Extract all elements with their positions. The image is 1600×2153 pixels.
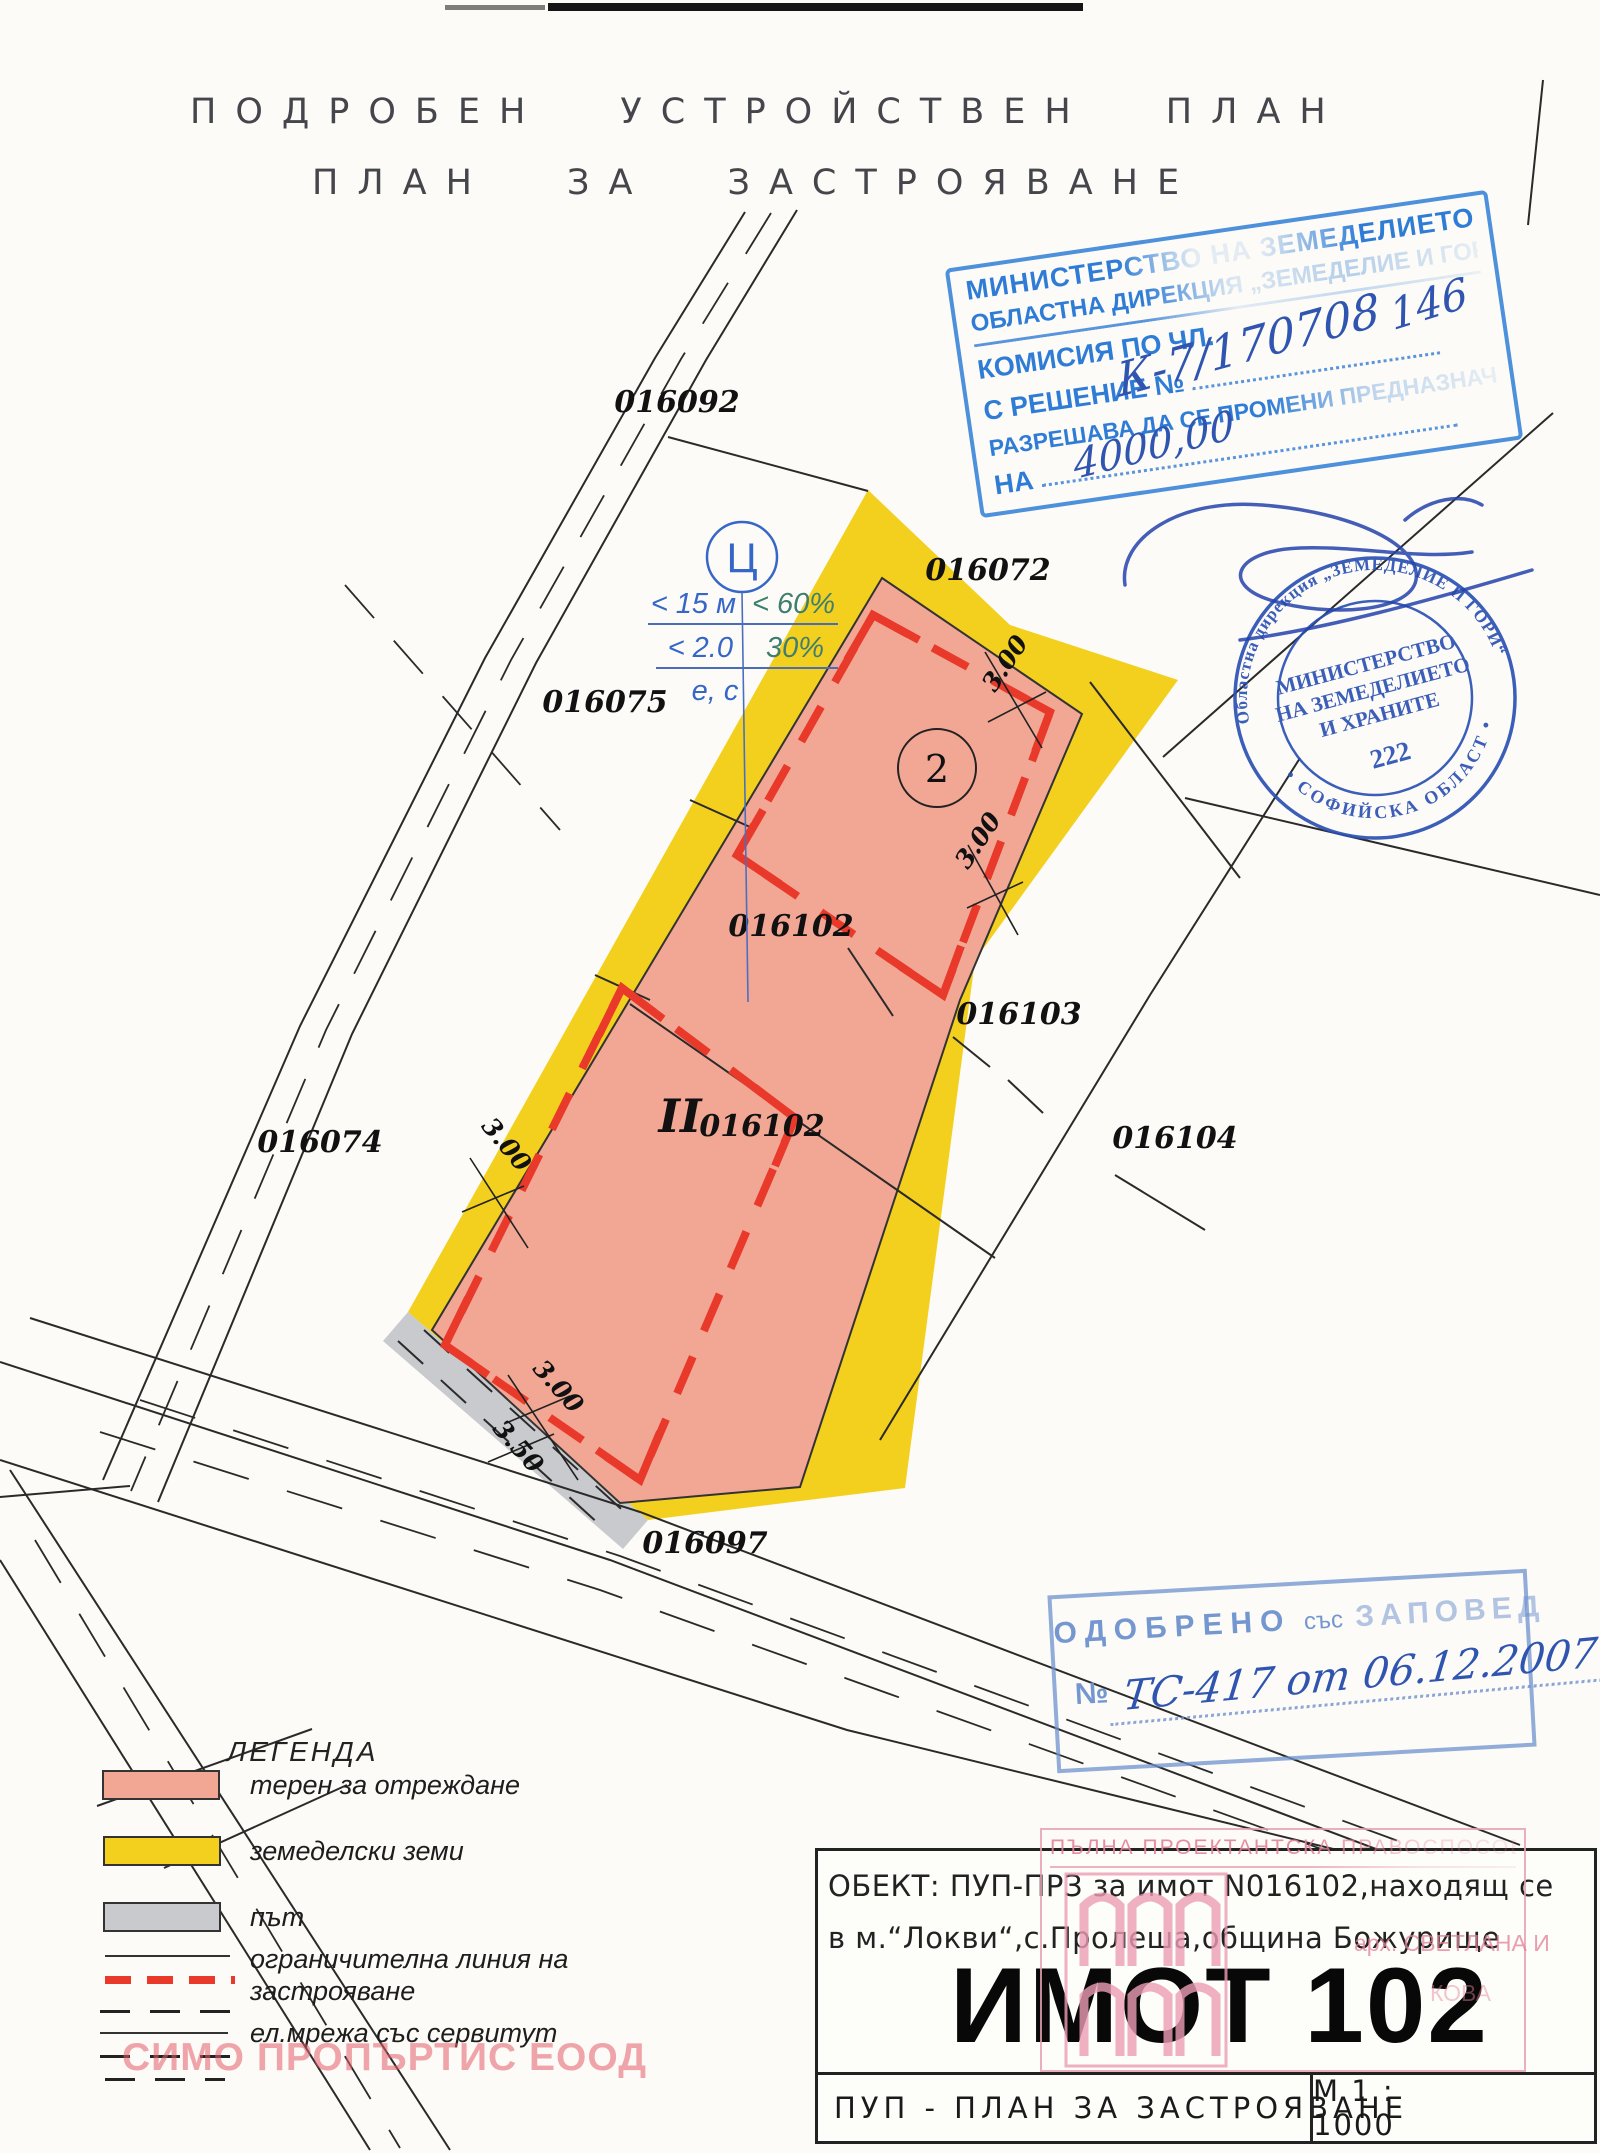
zoning-note: е, с: [692, 675, 739, 707]
order-word: ЗАПОВЕД: [1354, 1590, 1546, 1634]
approved-stamp: ОДОБРЕНО със ЗАПОВЕД № ТС-417 от 06.12.2…: [1047, 1569, 1536, 1774]
legend-swatch-agricultural: [103, 1836, 221, 1866]
parcel-label-016075: 016075: [542, 685, 667, 720]
zoning-density: < 60%: [752, 588, 835, 620]
architect-chamber-logo: [1062, 1870, 1232, 2070]
parcel-label-016104: 016104: [1112, 1121, 1237, 1156]
scale-cell: М 1 : 1000: [1310, 2075, 1473, 2141]
legend-limit-redline: [105, 1976, 235, 1984]
legend-label-limit-line1: ограничителна линия на: [250, 1944, 568, 1975]
scanned-plan-page: ПОДРОБЕН УСТРОЙСТВЕН ПЛАН ПЛАН ЗА ЗАСТРО…: [0, 0, 1600, 2153]
architect-stamp-header: ПЪЛНА ПРОЕКТАНТСКА ПРАВОСПОСОБНОСТ: [1050, 1836, 1516, 1868]
parcel-label-016072: 016072: [925, 553, 1050, 588]
legend-swatch-road: [103, 1902, 221, 1932]
zoning-height: < 15 м: [651, 588, 736, 620]
zoneII-parcel-number: 016102: [699, 1109, 824, 1144]
with-word: със: [1303, 1606, 1343, 1635]
legend-power-solid: [100, 2032, 228, 2034]
legend-label-limit-line2: застрояване: [250, 1976, 415, 2007]
legend-label-road: път: [250, 1902, 304, 1933]
architect-name2: КОВА: [1430, 1980, 1491, 2007]
na-label: НА: [992, 465, 1035, 500]
approved-word: ОДОБРЕНО: [1053, 1604, 1293, 1650]
parcel-label-016092: 016092: [614, 385, 739, 420]
parcel-label-016103: 016103: [956, 997, 1081, 1032]
legend-label-agricultural: земеделски земи: [250, 1836, 464, 1867]
round-stamp-number: 222: [1367, 735, 1414, 774]
legend-limit-thinline: [105, 1955, 230, 1957]
parcel-label-016097: 016097: [642, 1526, 767, 1561]
parcel-label-016074: 016074: [257, 1125, 382, 1160]
title-block-bottom-row: ПУП - ПЛАН ЗА ЗАСТРОЯВАНЕ М 1 : 1000: [818, 2072, 1594, 2141]
scale-value: М 1 : 1000: [1313, 2074, 1473, 2142]
approved-stamp-line2: № ТС-417 от 06.12.2007: [1073, 1636, 1600, 1719]
zoning-green: 30%: [766, 632, 824, 664]
watermark: СИМО ПРОПЪРТИС ЕООД: [122, 2036, 647, 2080]
zoning-intensity: < 2.0: [668, 632, 733, 664]
round-stamp-ring-bottom: • СОФИЙСКА ОБЛАСТ •: [1279, 712, 1516, 847]
number-sign: №: [1074, 1676, 1109, 1711]
architect-stamp: ПЪЛНА ПРОЕКТАНТСКА ПРАВОСПОСОБНОСТ арх. …: [1040, 1828, 1526, 2072]
zoneII-numeral: II: [656, 1089, 703, 1143]
architect-name: арх. СВЕТЛАНА И: [1354, 1930, 1550, 1957]
zoning-symbol-letter: Ц: [726, 534, 757, 581]
zone2-number: 2: [925, 747, 949, 791]
legend-power-dash1: [100, 2010, 232, 2013]
legend-label-designated: терен за отреждане: [250, 1770, 520, 1801]
legend-swatch-designated: [102, 1770, 220, 1800]
legend-title: ЛЕГЕНДА: [227, 1736, 378, 1768]
